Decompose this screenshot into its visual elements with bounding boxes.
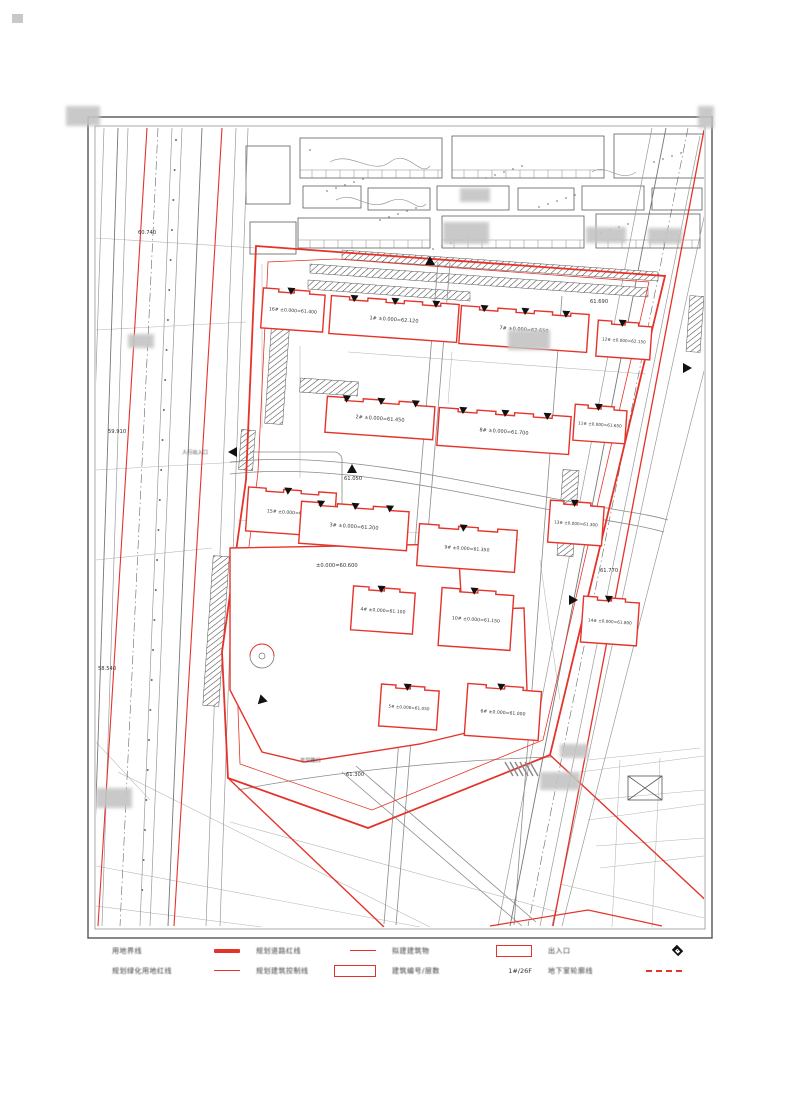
tree-dot [168,289,170,291]
legend-item: 出入口 [548,942,698,959]
building-footprint: 12# ±0.000=62.150 [596,318,653,360]
tree-dot [152,649,154,651]
building-footprint: 6# ±0.000=61.000 [464,681,542,740]
existing-building [614,134,706,178]
censored-patch [586,227,626,243]
road-redline-left-2 [174,128,222,926]
tree-dot [145,799,147,801]
building-footprint: 1# ±0.000=62.120 [329,294,459,343]
building-footprint: 14# ±0.000=61.800 [580,594,639,646]
tree-dot [680,152,682,154]
existing-building [518,188,574,210]
tree-dot [547,203,549,205]
existing-building [300,138,442,178]
tree-dot [512,168,514,170]
tree-dot [159,499,161,501]
legend-item: 规划绿化用地红线 [112,962,256,979]
tree-dot [503,171,505,173]
building-footprint: 11# ±0.000=61.650 [573,402,628,444]
tree-dot [172,199,174,201]
tree-dot [627,223,629,225]
parcel-line [96,322,246,330]
tree-dot [167,319,169,321]
pedestrian-entrance-label: 人行出入口 [182,448,208,456]
parking-hatch-strip [265,327,290,424]
tree-dot [556,200,558,202]
existing-building [246,146,290,204]
spot-elevation-label: 61.300 [346,772,364,778]
tree-dot [441,245,443,247]
tree-dot [148,739,150,741]
tree-dot [309,149,311,151]
spot-elevation-label: 59.910 [108,429,126,435]
legend-label: 规划道路红线 [256,946,301,956]
tree-dot [153,619,155,621]
thick-redline-symbol [214,949,240,953]
tree-dot [170,259,172,261]
censored-patch [540,772,580,790]
legend-label: 建筑编号/层数 [392,966,440,976]
building-footprint: 3# ±0.000=61.200 [299,499,410,550]
parking-hatch-strip [686,296,704,353]
legend-label: 用地界线 [112,946,142,956]
tree-dot [379,219,381,221]
censored-patch [508,330,550,350]
parking-hatch-strip [300,378,359,396]
censored-patch [128,334,154,348]
legend-item: 地下室轮廓线 [548,962,698,979]
tree-dot [144,829,146,831]
tree-dot [160,469,162,471]
tree-dot [335,187,337,189]
existing-building [652,188,702,210]
spot-elevation-label: 61.770 [600,568,618,574]
censored-patch [96,788,132,808]
tree-dot [485,177,487,179]
tree-dot [149,709,151,711]
building-footprint: 16# ±0.000=61.400 [261,286,326,332]
drawing-sheet: 16# ±0.000=61.4001# ±0.000=62.1207# ±0.0… [0,0,800,1117]
legend-label: 规划建筑控制线 [256,966,309,976]
existing-buildings-layer [141,134,706,891]
legend-label: 规划绿化用地红线 [112,966,172,976]
site-entrance-triangle [347,464,357,473]
parcel-line [612,760,620,927]
tree-dot [174,169,176,171]
building-footprint: 8# ±0.000=61.700 [437,405,571,454]
floor-count-symbol: 1#/26F [508,967,532,975]
tree-dot [151,679,153,681]
legend-item: 用地界线 [112,942,256,959]
site-entrance-triangle [228,447,237,457]
tree-dot [147,769,149,771]
tree-dot [388,216,390,218]
tree-dot [415,207,417,209]
tree-dot [353,181,355,183]
parcel-line [580,756,704,772]
tree-dot [662,158,664,160]
tree-dot [538,206,540,208]
tree-dot [432,248,434,250]
censored-patch [560,744,588,758]
building-footprint: 2# ±0.000=61.450 [325,394,435,439]
censored-patch [648,228,682,244]
thin-redline-symbol [214,970,240,972]
scan-smudge [12,14,23,23]
boundary-segment-bottom [490,910,662,926]
parcel-line [560,884,704,918]
parcel-line [592,790,704,800]
tree-dot [671,155,673,157]
tree-dot [163,409,165,411]
thin-redline-symbol [350,950,376,952]
legend-item: 建筑编号/层数 1#/26F [392,962,548,979]
building-footprint: 10# ±0.000=61.150 [438,586,514,651]
legend-label: 拟建建筑物 [392,946,430,956]
legend-label: 出入口 [548,946,571,956]
tree-dot [166,349,168,351]
tree-dot [326,190,328,192]
building-footprint: 9# ±0.000=61.350 [417,522,518,573]
existing-building [298,218,430,248]
tree-dot [156,559,158,561]
tree-dot [397,213,399,215]
spot-elevation-label: 61.690 [590,299,608,305]
site-entrance-triangle [683,363,692,373]
legend-item: 拟建建筑物 [392,942,548,959]
level-crossing-label: 平交路口 [300,756,321,764]
tree-dot [406,210,408,212]
tree-dot [521,165,523,167]
legend-label: 地下室轮廓线 [548,966,593,976]
legend: 用地界线 规划道路红线 拟建建筑物 出入口 规划绿化用地红线 规划建筑控制线 建… [112,942,712,979]
existing-building [452,136,604,178]
censored-patch [460,188,490,202]
large-plot-label: ±0.000=60.600 [316,563,358,569]
parcel-line [96,866,420,927]
tree-dot [171,229,173,231]
parcel-line [596,838,704,846]
legend-item: 规划建筑控制线 [256,962,392,979]
spot-elevation-label: 58.540 [98,666,116,672]
spot-elevation-label: 60.740 [138,230,156,236]
entrance-diamond-icon [672,945,683,956]
tree-dot [157,529,159,531]
censored-patch [66,106,100,126]
tree-dot [155,589,157,591]
building-symbol [496,945,532,957]
tree-dot [574,194,576,196]
tree-dot [162,439,164,441]
landscape-squiggle [330,158,430,169]
existing-building [303,186,361,208]
parcel-line [652,758,660,927]
parcel-line [600,856,704,868]
existing-building [582,186,644,210]
tree-dot [344,184,346,186]
tree-dot [653,161,655,163]
parcel-line [96,548,212,560]
tree-dot [164,379,166,381]
tree-dot [175,139,177,141]
tree-dot [362,178,364,180]
control-line-symbol [334,965,376,977]
existing-structure-cross [628,776,662,800]
building-footprint: 13# ±0.000=61.300 [548,498,605,546]
legend-item: 规划道路红线 [256,942,392,959]
tree-dot [565,197,567,199]
tree-dot [494,174,496,176]
censored-patch [443,222,489,244]
censored-patch [698,106,714,128]
underground-outline-symbol [646,970,682,972]
boundary-segment-sw [228,778,384,927]
landscape-squiggle [336,197,426,206]
spot-elevation-label: 61.050 [344,476,362,482]
